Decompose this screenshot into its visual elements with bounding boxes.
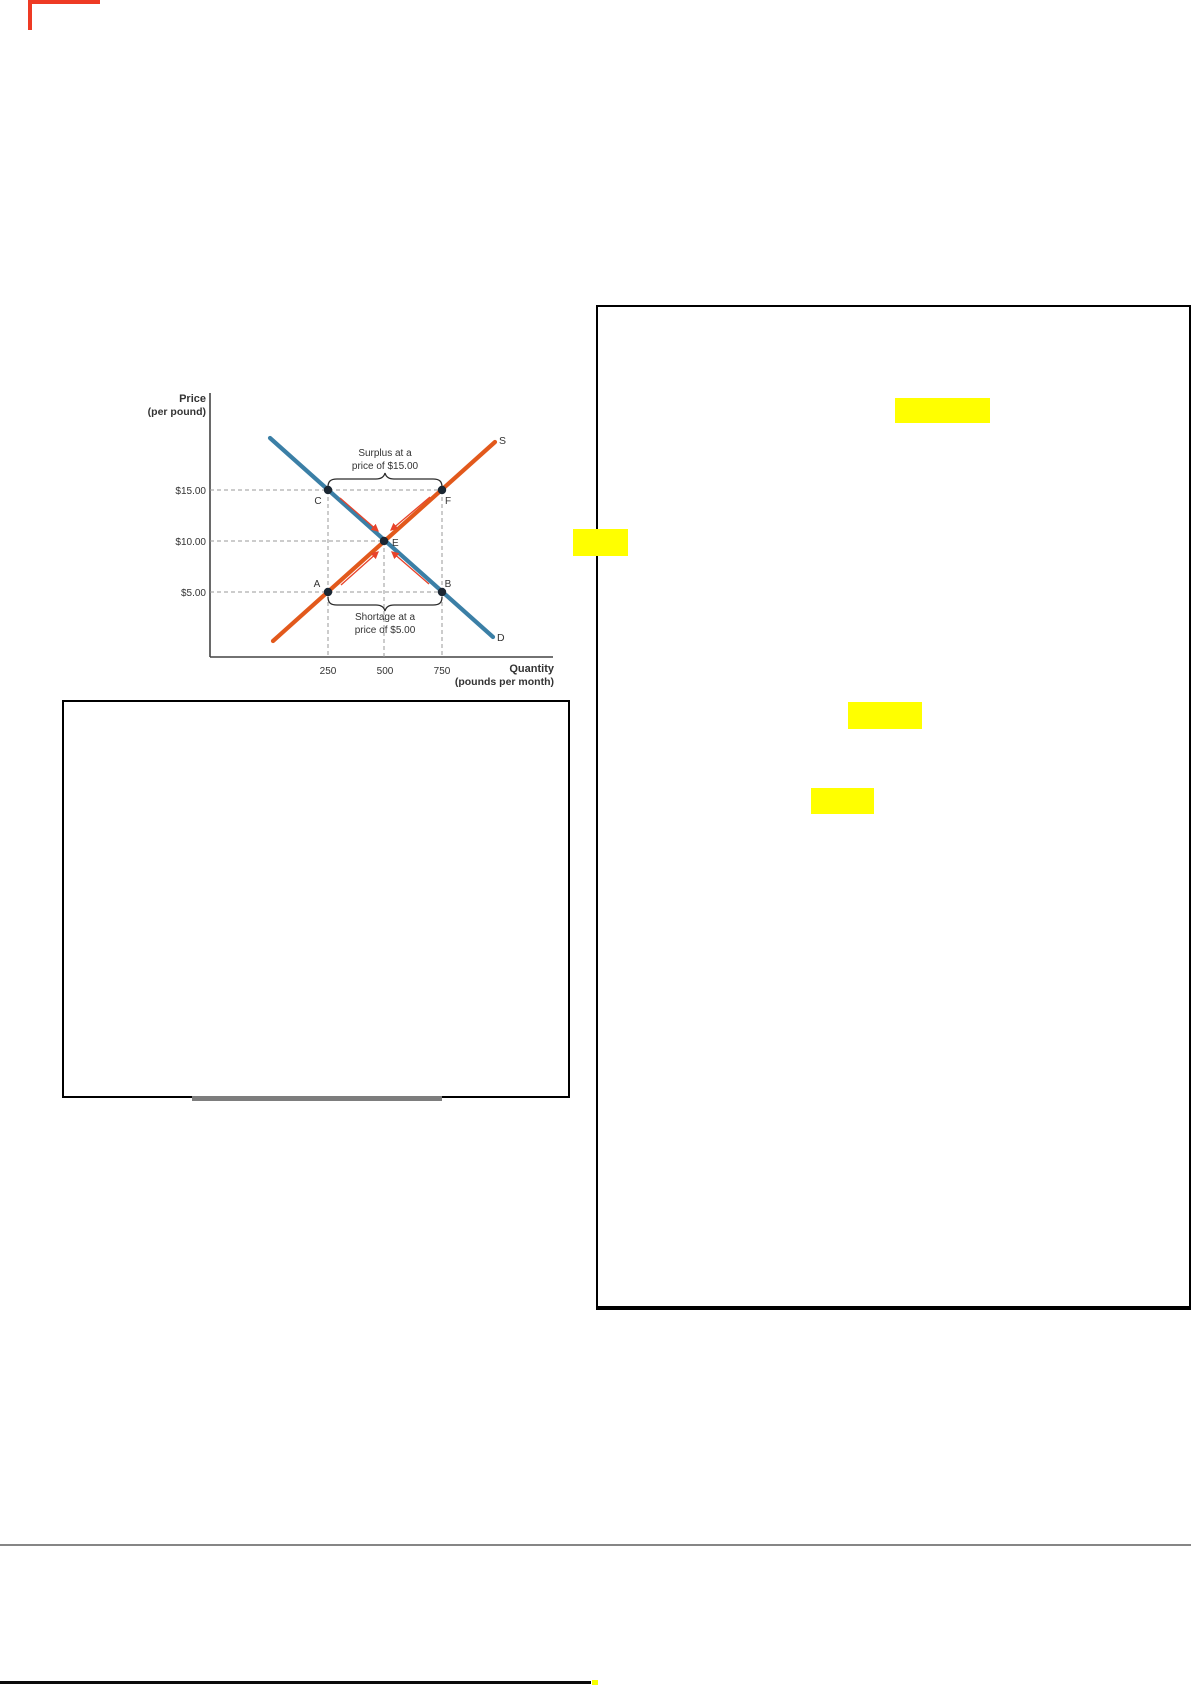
x-axis-title-line1: Quantity bbox=[509, 663, 554, 675]
point-label-e: E bbox=[392, 538, 399, 549]
highlight-blank-1 bbox=[895, 398, 990, 423]
x-tick-750: 750 bbox=[434, 666, 451, 677]
red-pen-mark-vertical bbox=[28, 0, 32, 30]
highlight-dot bbox=[592, 1680, 598, 1685]
x-tick-500: 500 bbox=[377, 666, 394, 677]
highlight-blank-4 bbox=[573, 529, 628, 556]
surplus-brace bbox=[328, 473, 442, 487]
shortage-caption-line1: Shortage at a bbox=[355, 612, 415, 623]
shortage-caption-line2: price of $5.00 bbox=[355, 625, 416, 636]
y-tick-15: $15.00 bbox=[175, 486, 206, 497]
worksheet-page: Price (per pound) $15.00 $10.00 $5.00 25… bbox=[0, 0, 1191, 1685]
y-axis-title-line1: Price bbox=[179, 393, 206, 405]
point-label-c: C bbox=[314, 496, 321, 507]
gray-underline-mark bbox=[192, 1096, 442, 1101]
surplus-caption-line2: price of $15.00 bbox=[352, 461, 419, 472]
x-axis-title-line2: (pounds per month) bbox=[455, 676, 554, 688]
surplus-caption-line1: Surplus at a bbox=[358, 448, 412, 459]
demand-curve-label: D bbox=[497, 632, 505, 644]
right-answer-panel bbox=[596, 305, 1191, 1310]
y-tick-10: $10.00 bbox=[175, 537, 206, 548]
page-divider-line bbox=[0, 1544, 1191, 1546]
point-label-f: F bbox=[445, 496, 451, 507]
shortage-brace bbox=[328, 597, 442, 611]
highlight-blank-2 bbox=[848, 702, 922, 729]
x-tick-250: 250 bbox=[320, 666, 337, 677]
supply-curve-label: S bbox=[499, 435, 506, 447]
highlight-blank-3 bbox=[811, 788, 874, 814]
point-label-b: B bbox=[445, 579, 452, 590]
red-pen-mark-horizontal bbox=[30, 0, 100, 4]
point-label-a: A bbox=[314, 579, 321, 590]
left-answer-box bbox=[62, 700, 570, 1098]
supply-demand-chart: Price (per pound) $15.00 $10.00 $5.00 25… bbox=[140, 380, 570, 700]
y-tick-5: $5.00 bbox=[181, 588, 206, 599]
y-axis-title-line2: (per pound) bbox=[148, 406, 206, 418]
bottom-rule-line bbox=[0, 1681, 591, 1684]
